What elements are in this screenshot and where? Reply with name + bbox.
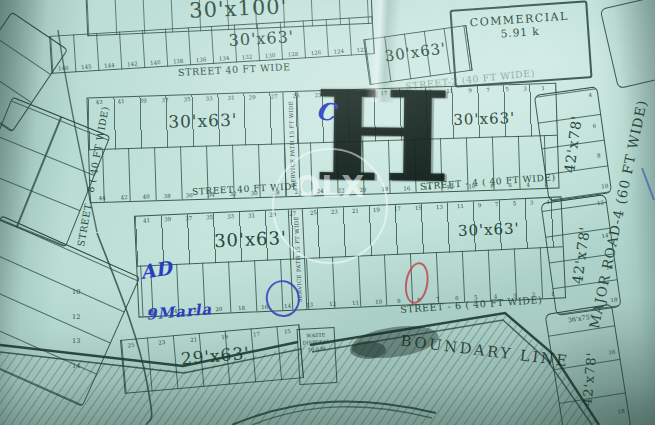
plot-size-label: 30'x100' xyxy=(189,0,288,23)
plot-number: 126 xyxy=(311,49,322,56)
plot-number: 5 xyxy=(505,86,509,92)
plot-number: 25 xyxy=(293,93,300,99)
plot-number: 13 xyxy=(72,337,80,345)
plot-number: 33 xyxy=(226,213,233,220)
plot-number: 145 xyxy=(81,63,92,70)
plot-number-column: 46810 xyxy=(588,91,609,189)
plot-number: 136 xyxy=(196,56,207,63)
plot-size-label: 29'x63' xyxy=(180,343,251,369)
corner-plot-top-right xyxy=(600,0,655,89)
plot-number: 10 xyxy=(72,288,80,296)
plot-number: 11 xyxy=(456,203,463,210)
plot-number: 5 xyxy=(512,200,516,206)
boundary-curve xyxy=(252,407,432,425)
plot-size-label: 30'x63' xyxy=(458,219,521,240)
plot-number: 3 xyxy=(530,200,534,206)
plot-number: 18 xyxy=(617,408,625,415)
plot-number: 13 xyxy=(435,204,442,211)
plot-number: 8 xyxy=(596,152,604,159)
plot-size-label: 42'x78' xyxy=(579,351,599,407)
plot-number: 12 xyxy=(329,301,336,308)
plot-number: 29 xyxy=(249,94,256,100)
plot-size-label: 30'x63' xyxy=(168,110,238,132)
ink-smudge xyxy=(350,341,386,359)
olx-watermark: OLX xyxy=(272,148,388,264)
plot-number: 23 xyxy=(158,339,166,346)
plot-number: 41 xyxy=(143,217,150,224)
plot-number: 31 xyxy=(247,212,254,219)
plot-number: 138 xyxy=(173,58,184,65)
plot-size-label: 30'x63' xyxy=(228,27,295,50)
plot-number: 17 xyxy=(394,206,401,213)
plot-number: 3 xyxy=(523,86,527,92)
waste-disposal-box: WASTE DISPOSAL 10.0 M xyxy=(297,327,338,385)
plot-number: 9 xyxy=(477,202,481,208)
olx-watermark-text: OLX xyxy=(295,168,366,203)
plot-map-photo: 30'x100' 30'x63' 14614514414214013813613… xyxy=(0,0,655,425)
plot-number: 25 xyxy=(127,342,135,349)
pen-slash-mark xyxy=(642,168,654,200)
plot-number: 4 xyxy=(588,91,596,98)
plot-number: 35 xyxy=(206,214,213,221)
plot-number: 39 xyxy=(139,97,146,103)
plot-number: 10 xyxy=(601,183,609,190)
plot-number: 9 xyxy=(468,87,472,93)
plot-number: 10 xyxy=(374,299,381,306)
plot-size-label: 30'x63' xyxy=(214,227,288,251)
plot-number: 128 xyxy=(288,51,299,58)
pen-mark-c: C xyxy=(314,96,337,127)
plot-number: 43 xyxy=(95,99,102,105)
plot-size-label: 30'x63' xyxy=(384,39,448,65)
plot-number: 18 xyxy=(238,305,245,312)
plot-number: 39 xyxy=(164,216,171,223)
plot-row-bottom: 252321191715 29'x63' xyxy=(120,324,304,393)
waste-label: DISPOSAL xyxy=(303,338,331,345)
plot-number: 31 xyxy=(227,95,234,101)
plot-number: 35 xyxy=(183,96,190,102)
plot-number: 42 xyxy=(120,194,127,200)
plot-number: 14 xyxy=(72,362,80,370)
plot-number: 146 xyxy=(58,65,69,72)
plot-number: 37 xyxy=(161,97,168,103)
plot-number: 44 xyxy=(98,195,105,201)
plot-number: 124 xyxy=(334,48,345,55)
plot-number: 140 xyxy=(150,59,161,66)
plot-number: 7 xyxy=(495,201,499,207)
plot-number: 41 xyxy=(117,98,124,104)
plot-number-column: 1618 xyxy=(608,349,625,415)
commercial-area: 5.91 k xyxy=(500,25,540,40)
plot-number-column: 10121314 xyxy=(72,288,80,370)
plot-number: 33 xyxy=(205,95,212,101)
plot-number: 1 xyxy=(542,85,546,91)
plot-number: 15 xyxy=(415,205,422,212)
plot-number: 40 xyxy=(142,193,149,199)
plot-number: 17 xyxy=(252,331,260,338)
plot-number: 7 xyxy=(486,87,490,93)
waste-label: WASTE xyxy=(306,332,325,339)
plot-number: 12 xyxy=(72,313,80,321)
plot-number: 12 xyxy=(597,199,605,206)
left-fan-plots-lower xyxy=(0,215,140,407)
plot-number: 132 xyxy=(242,53,253,60)
boundary-line-label: BOUNDARY LINE xyxy=(400,332,571,371)
plot-number: 37 xyxy=(185,215,192,222)
plot-number: 19 xyxy=(221,333,229,340)
plot-number: 38 xyxy=(164,193,171,199)
plot-number: 13 xyxy=(306,302,313,309)
plot-size-label: 30'x63' xyxy=(453,109,515,129)
pen-mark-ad: AD xyxy=(139,257,173,283)
plot-number: 27 xyxy=(271,93,278,99)
plot-number: 18 xyxy=(610,296,618,303)
plot-number: 11 xyxy=(352,300,359,307)
plot-number: 16 xyxy=(608,349,616,356)
plot-number: 134 xyxy=(219,55,230,62)
plot-number: 130 xyxy=(265,52,276,59)
plot-size-label: 42'x78' xyxy=(561,114,585,174)
plot-number: 15 xyxy=(283,328,291,335)
plot-number: 20 xyxy=(215,306,222,313)
waste-label: 10.0 M xyxy=(308,346,326,353)
plot-strip-42x78-upper: 42'x78' 46810 xyxy=(534,86,612,202)
plot-number: 21 xyxy=(190,336,198,343)
plot-number: 144 xyxy=(104,62,115,69)
plot-number: 142 xyxy=(127,60,138,67)
plot-size-label: 42'x78' xyxy=(569,225,593,285)
boundary-curve xyxy=(232,401,436,425)
plot-number: 6 xyxy=(592,122,600,129)
